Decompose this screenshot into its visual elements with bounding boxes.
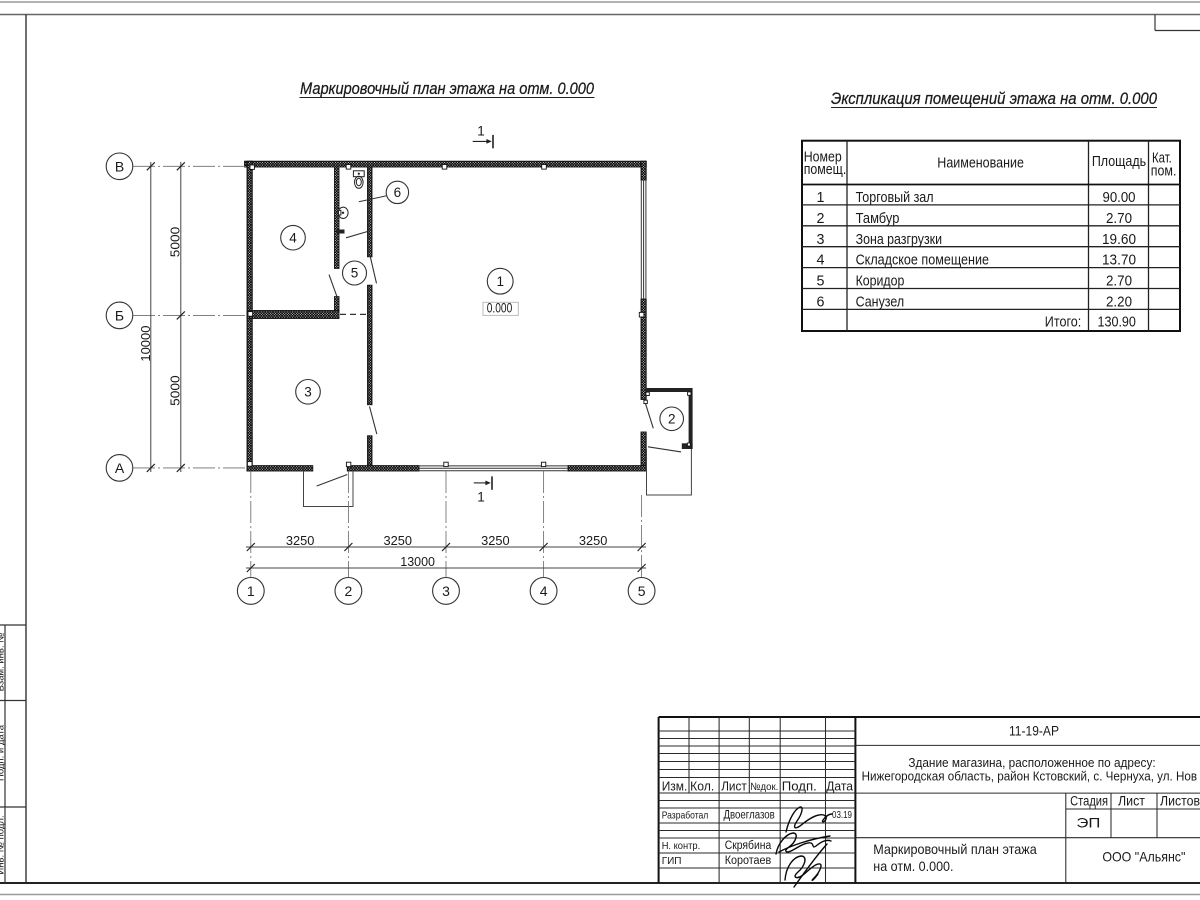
svg-text:2.70: 2.70	[1106, 211, 1132, 227]
svg-text:11-19-АР: 11-19-АР	[1009, 723, 1059, 739]
svg-text:1: 1	[477, 123, 485, 138]
svg-text:ЭП: ЭП	[1076, 815, 1100, 831]
svg-text:Взам. инв. №: Взам. инв. №	[0, 633, 7, 692]
svg-text:Дата: Дата	[826, 779, 853, 794]
svg-text:А: А	[115, 460, 125, 476]
svg-text:Наименование: Наименование	[937, 156, 1024, 172]
svg-text:Площадь: Площадь	[1092, 154, 1146, 170]
svg-text:130.90: 130.90	[1097, 315, 1136, 331]
svg-text:2: 2	[345, 583, 353, 599]
svg-text:ГИП: ГИП	[662, 855, 682, 867]
svg-text:Изм.: Изм.	[662, 779, 688, 794]
svg-text:2.20: 2.20	[1106, 295, 1132, 311]
svg-text:3250: 3250	[384, 534, 413, 548]
svg-text:2: 2	[817, 211, 825, 227]
svg-text:Нижегородская область, район К: Нижегородская область, район Кстовский, …	[862, 769, 1197, 784]
svg-text:Зона разгрузки: Зона разгрузки	[856, 232, 942, 248]
svg-text:Лист: Лист	[1118, 794, 1145, 809]
svg-text:Инв. № подл.: Инв. № подл.	[0, 815, 7, 874]
svg-text:13.70: 13.70	[1102, 253, 1136, 269]
svg-text:6: 6	[817, 295, 825, 311]
svg-text:пом.: пом.	[1151, 164, 1177, 180]
svg-text:4: 4	[289, 230, 297, 245]
svg-text:Складское помещение: Складское помещение	[856, 253, 989, 269]
svg-text:5000: 5000	[168, 375, 182, 406]
svg-text:Н. контр.: Н. контр.	[662, 840, 701, 852]
svg-text:ООО "Альянс": ООО "Альянс"	[1102, 849, 1185, 865]
svg-text:3: 3	[817, 232, 825, 248]
svg-text:2: 2	[668, 412, 676, 427]
svg-text:Маркировочный план этажа: Маркировочный план этажа	[873, 841, 1037, 857]
svg-text:Разработал: Разработал	[662, 809, 709, 821]
svg-text:Тамбур: Тамбур	[856, 211, 900, 227]
svg-text:1: 1	[477, 489, 485, 504]
svg-text:13000: 13000	[400, 555, 435, 569]
svg-text:Торговый зал: Торговый зал	[856, 190, 934, 206]
svg-text:Стадия: Стадия	[1070, 794, 1108, 809]
svg-text:3: 3	[304, 385, 312, 400]
svg-text:90.00: 90.00	[1103, 190, 1136, 206]
svg-text:Двоеглазов: Двоеглазов	[724, 809, 775, 821]
svg-text:5: 5	[351, 266, 359, 281]
svg-text:6: 6	[394, 185, 402, 200]
svg-text:03.19: 03.19	[832, 809, 852, 821]
svg-text:Подп.: Подп.	[782, 779, 817, 794]
svg-text:3250: 3250	[286, 534, 315, 548]
svg-text:Санузел: Санузел	[856, 295, 905, 311]
svg-text:10000: 10000	[139, 326, 153, 362]
svg-text:5000: 5000	[168, 227, 182, 258]
svg-text:4: 4	[540, 583, 548, 599]
svg-text:3250: 3250	[481, 534, 510, 548]
svg-text:5: 5	[817, 274, 825, 290]
svg-text:Б: Б	[115, 307, 124, 323]
svg-text:Коротаев: Коротаев	[725, 855, 772, 867]
svg-text:5: 5	[638, 583, 646, 599]
svg-text:Скрябина: Скрябина	[725, 840, 772, 852]
svg-text:на отм. 0.000.: на отм. 0.000.	[873, 858, 953, 874]
svg-text:помещ.: помещ.	[804, 162, 847, 178]
svg-text:3250: 3250	[579, 534, 608, 548]
svg-text:Подп. и дата: Подп. и дата	[0, 724, 7, 781]
svg-text:1: 1	[496, 274, 504, 289]
svg-text:Кол.: Кол.	[690, 779, 714, 794]
svg-text:Маркировочный план этажа на от: Маркировочный план этажа на отм. 0.000	[300, 79, 594, 98]
svg-text:Итого:: Итого:	[1045, 315, 1082, 331]
svg-text:3: 3	[442, 583, 450, 599]
svg-text:1: 1	[817, 190, 825, 206]
svg-text:1: 1	[247, 583, 255, 599]
svg-text:4: 4	[817, 253, 825, 269]
svg-text:В: В	[115, 158, 124, 174]
svg-text:Листов: Листов	[1160, 794, 1200, 809]
svg-text:19.60: 19.60	[1102, 232, 1136, 248]
svg-text:Коридор: Коридор	[856, 274, 905, 290]
svg-text:№док.: №док.	[750, 781, 778, 793]
svg-text:0.000: 0.000	[487, 300, 513, 315]
svg-text:Лист: Лист	[721, 779, 747, 794]
svg-text:Экспликация помещений этажа на: Экспликация помещений этажа на отм. 0.00…	[831, 89, 1157, 108]
svg-text:2.70: 2.70	[1106, 274, 1132, 290]
